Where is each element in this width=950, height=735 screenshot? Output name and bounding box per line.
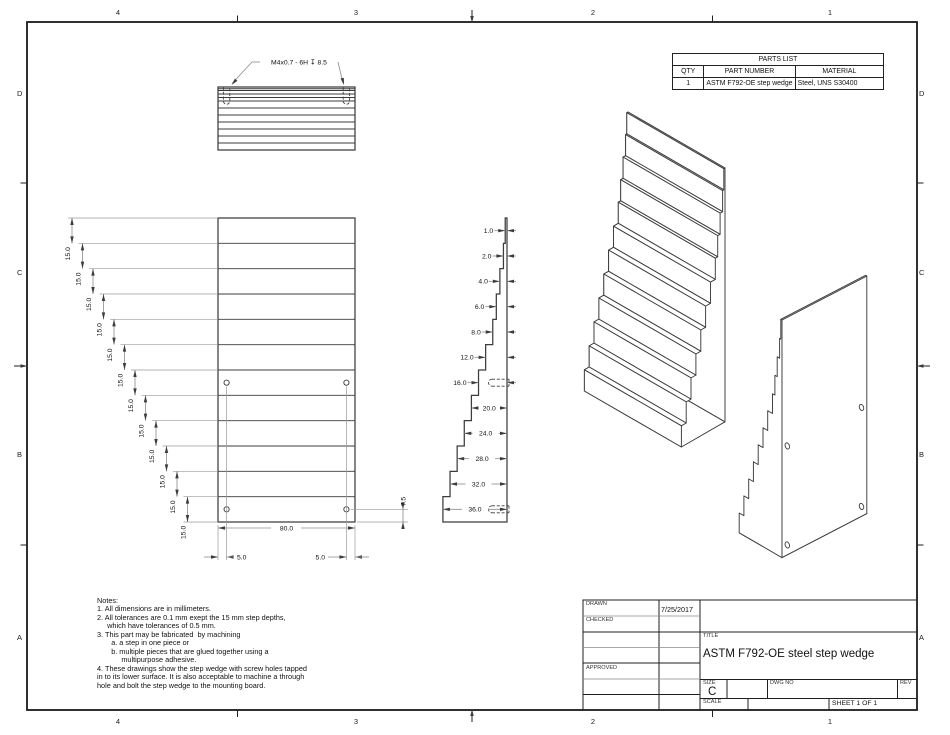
svg-text:15.0: 15.0 — [65, 247, 72, 260]
scale-label: SCALE — [703, 699, 721, 705]
svg-text:15.0: 15.0 — [170, 500, 177, 513]
zone-label-bottom: 4 — [116, 717, 120, 726]
zone-label-left: B — [17, 450, 22, 459]
zone-label-left: D — [17, 89, 22, 98]
front-dims: 15.015.015.015.015.015.015.015.015.015.0… — [65, 218, 218, 539]
svg-text:15.0: 15.0 — [149, 450, 156, 463]
zone-label-bottom: 3 — [354, 717, 358, 726]
svg-text:M4x0.7 - 6H ↧ 8.5: M4x0.7 - 6H ↧ 8.5 — [271, 59, 327, 67]
svg-text:15.0: 15.0 — [138, 424, 145, 437]
parts-list-header-qty: QTY — [673, 66, 704, 78]
svg-text:6.0: 6.0 — [475, 304, 485, 311]
thread-callout: M4x0.7 - 6H ↧ 8.5 — [232, 59, 345, 86]
parts-material: Steel, UNS S30400 — [795, 78, 883, 90]
svg-text:15.0: 15.0 — [75, 272, 82, 285]
parts-list-header-material: MATERIAL — [795, 66, 883, 78]
drawing-sheet: M4x0.7 - 6H ↧ 8.515.015.015.015.015.015.… — [0, 0, 950, 735]
drawn-date: 7/25/2017 — [661, 605, 693, 614]
hole-bottom-dim: 7.5 — [350, 497, 408, 529]
svg-text:5.0: 5.0 — [237, 555, 247, 562]
zone-label-bottom: 2 — [591, 717, 595, 726]
parts-list-row: 1 ASTM F792-OE step wedge Steel, UNS S30… — [673, 78, 884, 90]
svg-text:32.0: 32.0 — [472, 481, 485, 488]
svg-text:36.0: 36.0 — [468, 507, 481, 514]
hole-edge-dims: 5.05.0 — [204, 555, 369, 562]
svg-text:15.0: 15.0 — [96, 323, 103, 336]
svg-text:15.0: 15.0 — [128, 399, 135, 412]
iso-back-view — [739, 275, 867, 557]
svg-text:2.0: 2.0 — [482, 253, 492, 260]
zone-label-right: D — [919, 89, 924, 98]
checked-label: CHECKED — [586, 617, 613, 623]
svg-text:15.0: 15.0 — [117, 374, 124, 387]
rev-label: REV — [900, 680, 912, 686]
drawing-title: ASTM F792-OE steel step wedge — [703, 648, 874, 660]
iso-front-view — [584, 112, 725, 447]
svg-text:20.0: 20.0 — [483, 405, 496, 412]
zone-label-top: 2 — [591, 8, 595, 17]
zone-label-top: 4 — [116, 8, 120, 17]
zone-label-bottom: 1 — [828, 717, 832, 726]
svg-text:5.0: 5.0 — [316, 555, 326, 562]
zone-label-right: B — [919, 450, 924, 459]
zone-label-right: C — [919, 268, 924, 277]
svg-text:12.0: 12.0 — [460, 355, 473, 362]
approved-label: APPROVED — [586, 665, 617, 671]
svg-text:16.0: 16.0 — [453, 380, 466, 387]
svg-text:28.0: 28.0 — [475, 456, 488, 463]
svg-text:7.5: 7.5 — [401, 497, 408, 507]
parts-part-number: ASTM F792-OE step wedge — [704, 78, 795, 90]
note-line: hole and bolt the step wedge to the moun… — [97, 682, 307, 690]
zone-label-left: A — [17, 633, 22, 642]
svg-text:1.0: 1.0 — [484, 228, 494, 235]
front-view — [218, 218, 355, 560]
zone-label-right: A — [919, 633, 924, 642]
title-label: TITLE — [703, 633, 718, 639]
svg-text:15.0: 15.0 — [107, 348, 114, 361]
svg-text:4.0: 4.0 — [478, 279, 488, 286]
svg-text:80.0: 80.0 — [280, 526, 293, 533]
parts-qty: 1 — [673, 78, 704, 90]
parts-list-header-part: PART NUMBER — [704, 66, 795, 78]
parts-list-title: PARTS LIST — [673, 54, 884, 66]
zone-label-top: 3 — [354, 8, 358, 17]
drawn-label: DRAWN — [586, 601, 607, 607]
zone-label-left: C — [17, 268, 22, 277]
sheet-number: SHEET 1 OF 1 — [832, 700, 877, 707]
parts-list: PARTS LIST QTY PART NUMBER MATERIAL 1 AS… — [672, 53, 884, 90]
dwg-no-label: DWG NO — [770, 680, 794, 686]
size-value: C — [708, 686, 716, 698]
svg-text:24.0: 24.0 — [479, 431, 492, 438]
side-view — [443, 218, 509, 522]
svg-text:8.0: 8.0 — [471, 329, 481, 336]
top-view — [218, 87, 355, 150]
zone-label-top: 1 — [828, 8, 832, 17]
svg-text:15.0: 15.0 — [180, 526, 187, 539]
svg-text:15.0: 15.0 — [86, 298, 93, 311]
notes-block: Notes:1. All dimensions are in millimete… — [97, 597, 307, 690]
svg-text:15.0: 15.0 — [159, 475, 166, 488]
